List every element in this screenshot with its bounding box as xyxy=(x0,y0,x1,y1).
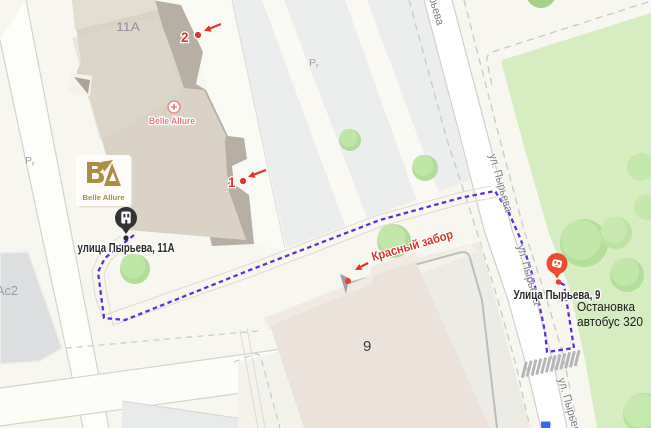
svg-text:1: 1 xyxy=(228,175,236,190)
svg-text:2: 2 xyxy=(181,30,189,45)
svg-text:Belle Allure: Belle Allure xyxy=(149,116,195,127)
svg-text:улица Пырьева, 11А: улица Пырьева, 11А xyxy=(78,240,175,255)
svg-text:Остановка: Остановка xyxy=(577,299,636,314)
svg-text:11А: 11А xyxy=(116,20,140,34)
svg-text:Ас2: Ас2 xyxy=(0,283,18,298)
svg-text:9: 9 xyxy=(363,338,371,355)
svg-text:автобус 320: автобус 320 xyxy=(577,314,643,329)
svg-text:Belle Allure: Belle Allure xyxy=(83,193,125,202)
